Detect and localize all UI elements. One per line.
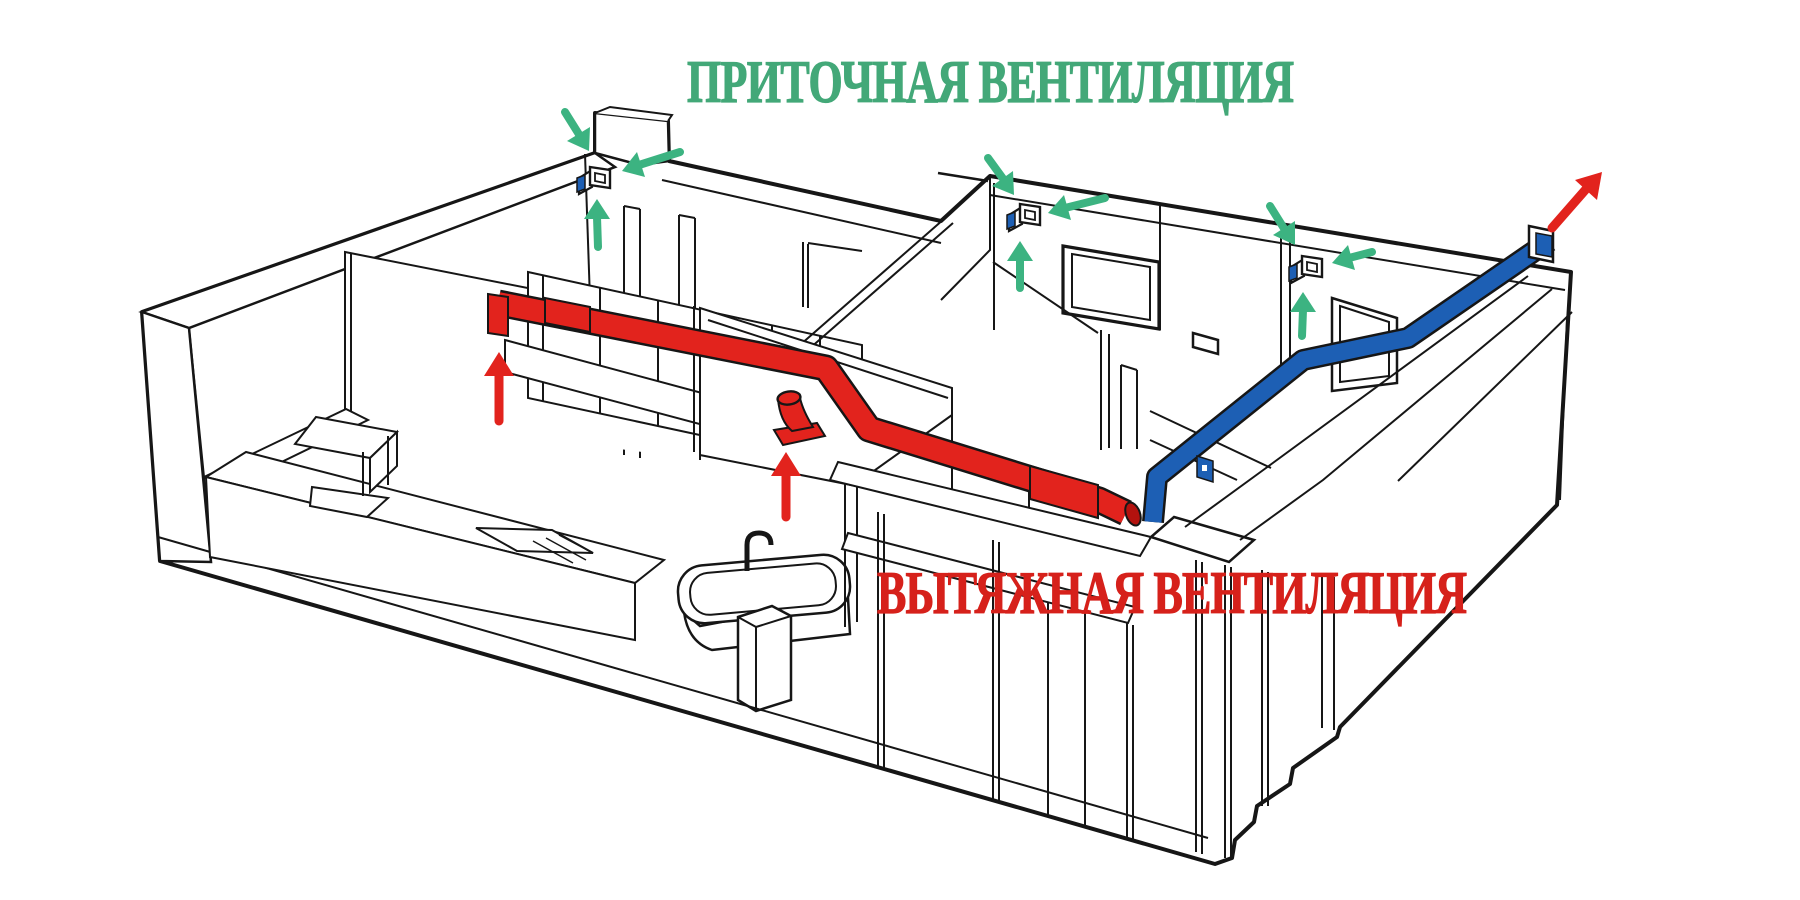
svg-text:ПРИТОЧНАЯ ВЕНТИЛЯЦИЯ: ПРИТОЧНАЯ ВЕНТИЛЯЦИЯ (687, 49, 1294, 115)
svg-text:ВЫТЯЖНАЯ ВЕНТИЛЯЦИЯ: ВЫТЯЖНАЯ ВЕНТИЛЯЦИЯ (877, 560, 1467, 626)
